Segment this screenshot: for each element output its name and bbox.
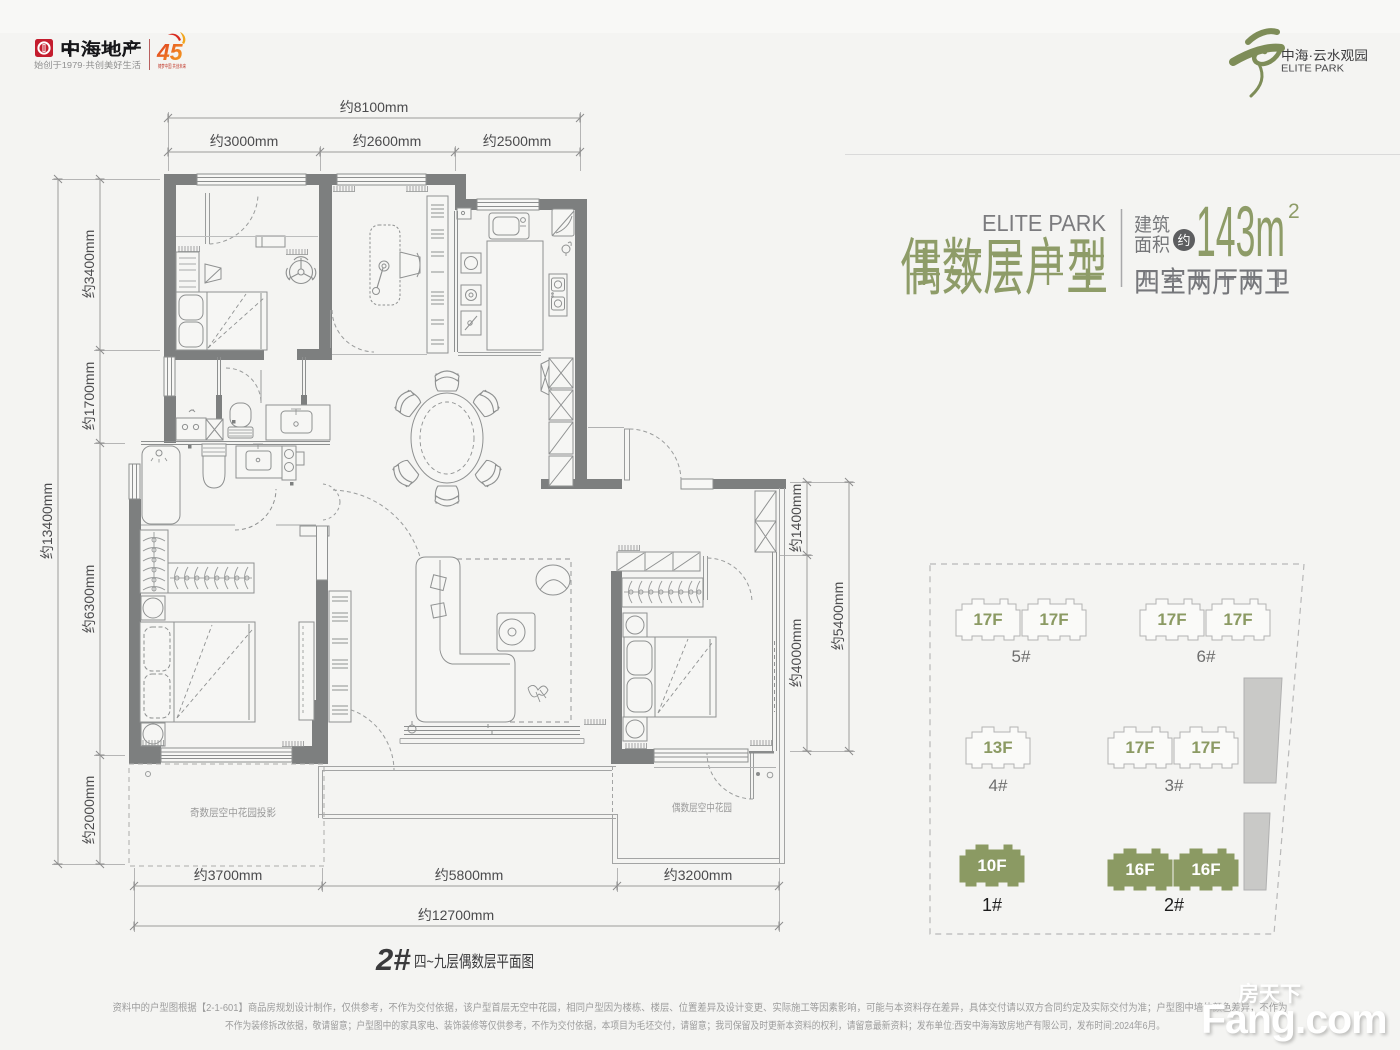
svg-text:约2500mm: 约2500mm: [483, 133, 551, 149]
svg-text:16F: 16F: [1191, 860, 1220, 879]
svg-text:四室两厅两卫: 四室两厅两卫: [1134, 266, 1290, 299]
svg-text:始创于1979·共创美好生活: 始创于1979·共创美好生活: [34, 60, 142, 70]
svg-text:偶数层空中花园: 偶数层空中花园: [672, 801, 732, 814]
svg-text:约2000mm: 约2000mm: [81, 776, 97, 844]
svg-text:约: 约: [1177, 233, 1190, 248]
svg-text:不作为装修拆改依据，敬请留意；户型图中的家具家电、装饰装修等: 不作为装修拆改依据，敬请留意；户型图中的家具家电、装饰装修等仅供参考，不作为交付…: [225, 1019, 1165, 1032]
svg-text:17F: 17F: [1039, 610, 1068, 629]
svg-text:约1700mm: 约1700mm: [81, 362, 97, 430]
svg-text:2#: 2#: [1164, 895, 1184, 915]
svg-text:约12700mm: 约12700mm: [418, 907, 494, 923]
svg-text:Fang.com: Fang.com: [1201, 996, 1387, 1042]
svg-text:约13400mm: 约13400mm: [39, 483, 55, 559]
svg-text:约4000mm: 约4000mm: [788, 619, 804, 687]
svg-text:约2600mm: 约2600mm: [353, 133, 421, 149]
svg-text:4#: 4#: [989, 776, 1008, 795]
svg-text:约3700mm: 约3700mm: [194, 867, 262, 883]
svg-text:ELITE PARK: ELITE PARK: [1281, 64, 1344, 75]
svg-text:约1400mm: 约1400mm: [788, 484, 804, 552]
svg-text:1#: 1#: [982, 895, 1002, 915]
svg-text:17F: 17F: [1223, 610, 1252, 629]
svg-text:约6300mm: 约6300mm: [81, 565, 97, 633]
svg-text:面积: 面积: [1134, 234, 1170, 256]
svg-text:建筑: 建筑: [1134, 214, 1170, 236]
svg-text:奇数层空中花园投影: 奇数层空中花园投影: [190, 806, 276, 819]
svg-text:143m: 143m: [1196, 193, 1285, 272]
svg-text:约3400mm: 约3400mm: [81, 230, 97, 298]
svg-text:45: 45: [156, 39, 184, 65]
svg-text:铸梦中国 共创未来: 铸梦中国 共创未来: [158, 63, 186, 70]
svg-text:约3200mm: 约3200mm: [664, 867, 732, 883]
svg-text:偶数层户型: 偶数层户型: [900, 234, 1108, 303]
svg-text:资料中的户型图根据【2-1-601】商品房规划设计制作，仅供: 资料中的户型图根据【2-1-601】商品房规划设计制作，仅供参考，不作为交付依据…: [113, 1001, 1288, 1014]
svg-text:四~九层偶数层平面图: 四~九层偶数层平面图: [414, 953, 534, 971]
svg-text:17F: 17F: [1125, 738, 1154, 757]
svg-text:2#: 2#: [375, 942, 411, 977]
svg-text:约3000mm: 约3000mm: [210, 133, 278, 149]
svg-text:5#: 5#: [1012, 647, 1031, 666]
svg-text:16F: 16F: [1125, 860, 1154, 879]
svg-text:17F: 17F: [1157, 610, 1186, 629]
svg-text:2: 2: [1288, 200, 1300, 223]
svg-text:ELITE PARK: ELITE PARK: [982, 210, 1107, 236]
svg-text:13F: 13F: [983, 738, 1012, 757]
svg-text:3#: 3#: [1165, 776, 1184, 795]
svg-text:约5400mm: 约5400mm: [830, 582, 846, 650]
svg-text:17F: 17F: [973, 610, 1002, 629]
svg-text:10F: 10F: [977, 856, 1006, 875]
svg-text:中海·云水观园: 中海·云水观园: [1281, 48, 1368, 63]
svg-text:约5800mm: 约5800mm: [435, 867, 503, 883]
svg-text:17F: 17F: [1191, 738, 1220, 757]
svg-text:约8100mm: 约8100mm: [340, 99, 408, 115]
svg-text:6#: 6#: [1197, 647, 1216, 666]
